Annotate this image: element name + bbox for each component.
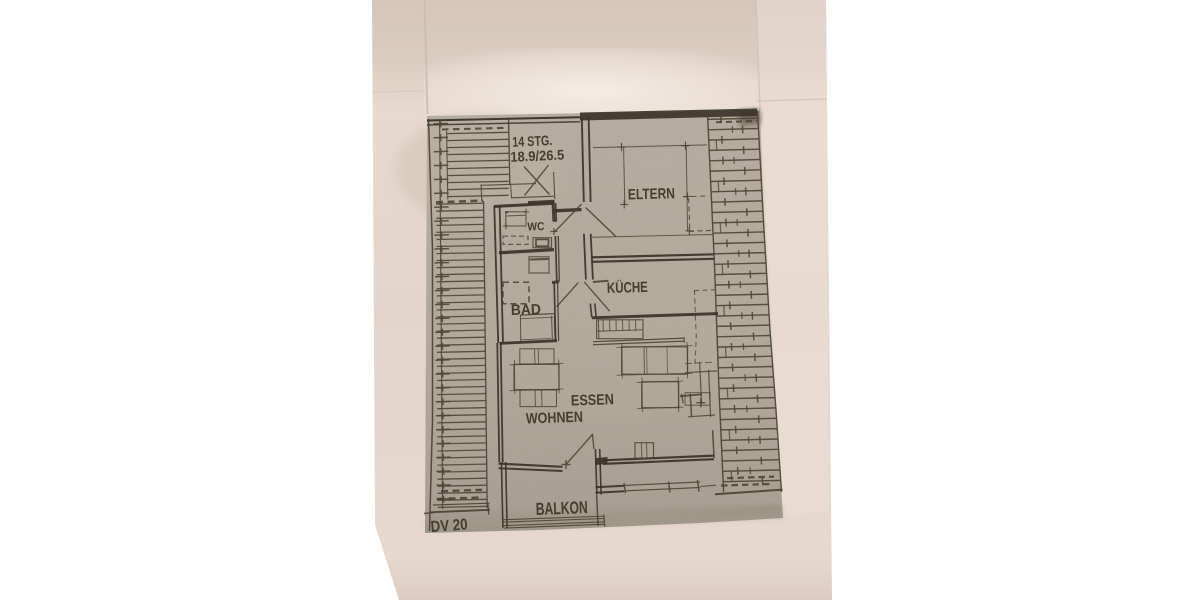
svg-text:BALKON: BALKON	[535, 497, 588, 519]
svg-text:DV 20: DV 20	[430, 516, 468, 536]
svg-text:18.9/26.5: 18.9/26.5	[510, 146, 565, 164]
svg-text:KÜCHE: KÜCHE	[607, 279, 648, 297]
svg-text:BAD: BAD	[511, 301, 542, 319]
svg-text:ESSEN: ESSEN	[571, 391, 615, 409]
svg-text:ELTERN: ELTERN	[628, 185, 675, 203]
svg-text:WOHNEN: WOHNEN	[526, 409, 584, 428]
svg-text:WC: WC	[527, 221, 544, 233]
